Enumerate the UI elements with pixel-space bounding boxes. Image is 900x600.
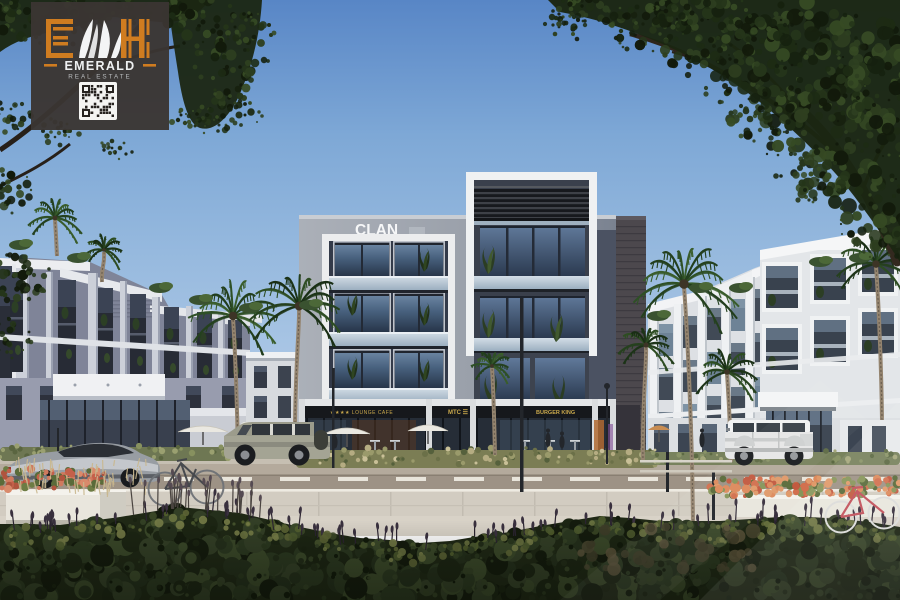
svg-text:BURGER KING: BURGER KING (536, 410, 575, 416)
svg-text:MTC ☰: MTC ☰ (448, 409, 468, 416)
svg-text:EMERALD: EMERALD (65, 59, 136, 73)
svg-text:REAL ESTATE: REAL ESTATE (68, 74, 132, 81)
svg-text:★★★★ LOUNGE CAFE: ★★★★ LOUNGE CAFE (330, 410, 393, 416)
